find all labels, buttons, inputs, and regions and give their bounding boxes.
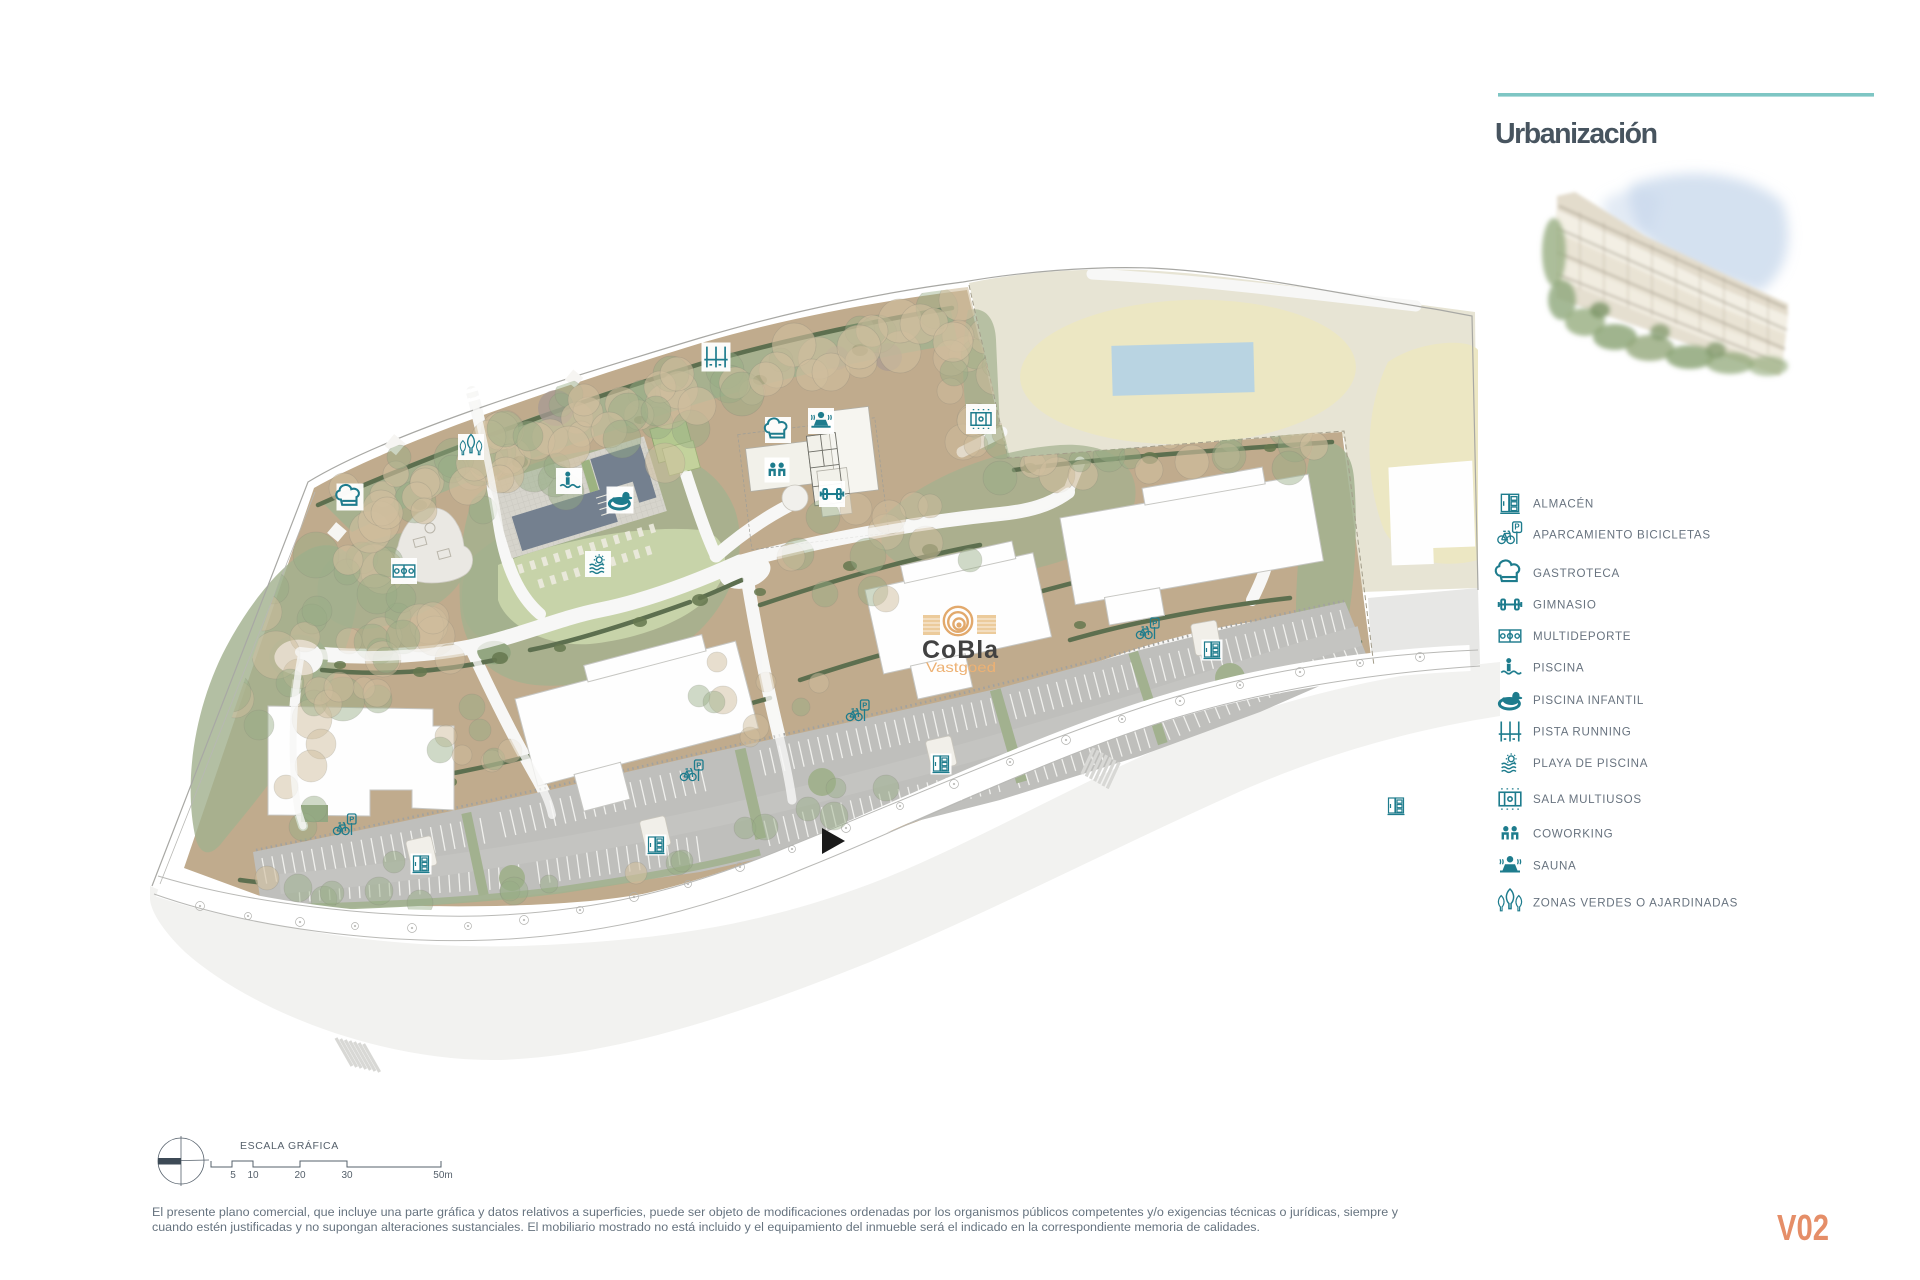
svg-text:30: 30 bbox=[341, 1170, 353, 1181]
svg-text:Urbanización: Urbanización bbox=[1495, 118, 1658, 150]
svg-text:50m: 50m bbox=[433, 1170, 452, 1181]
svg-text:GASTROTECA: GASTROTECA bbox=[1533, 567, 1620, 580]
svg-text:P: P bbox=[349, 814, 354, 823]
svg-text:V02: V02 bbox=[1777, 1207, 1829, 1248]
svg-text:P: P bbox=[1514, 523, 1519, 532]
svg-text:20: 20 bbox=[294, 1170, 306, 1181]
svg-text:ESCALA GRÁFICA: ESCALA GRÁFICA bbox=[240, 1139, 339, 1152]
svg-text:ALMACÉN: ALMACÉN bbox=[1533, 498, 1594, 511]
svg-text:cuando estén justificadas y no: cuando estén justificadas y no supongan … bbox=[152, 1220, 1260, 1234]
svg-text:SALA MULTIUSOS: SALA MULTIUSOS bbox=[1533, 793, 1642, 806]
svg-text:10: 10 bbox=[247, 1170, 259, 1181]
svg-text:P: P bbox=[1152, 618, 1157, 627]
svg-text:PISTA RUNNING: PISTA RUNNING bbox=[1533, 726, 1631, 739]
svg-text:PISCINA: PISCINA bbox=[1533, 662, 1584, 675]
svg-text:APARCAMIENTO BICICLETAS: APARCAMIENTO BICICLETAS bbox=[1533, 529, 1711, 542]
svg-text:PLAYA DE PISCINA: PLAYA DE PISCINA bbox=[1533, 757, 1648, 770]
svg-text:El presente plano comercial, q: El presente plano comercial, que incluye… bbox=[152, 1205, 1399, 1219]
svg-text:MULTIDEPORTE: MULTIDEPORTE bbox=[1533, 630, 1631, 643]
svg-text:P: P bbox=[862, 700, 867, 709]
svg-text:5: 5 bbox=[230, 1170, 236, 1181]
svg-text:SAUNA: SAUNA bbox=[1533, 860, 1576, 873]
svg-text:COWORKING: COWORKING bbox=[1533, 828, 1613, 841]
svg-text:P: P bbox=[696, 760, 701, 769]
svg-text:PISCINA INFANTIL: PISCINA INFANTIL bbox=[1533, 694, 1644, 707]
svg-text:GIMNASIO: GIMNASIO bbox=[1533, 599, 1597, 612]
svg-text:ZONAS VERDES O AJARDINADAS: ZONAS VERDES O AJARDINADAS bbox=[1533, 897, 1738, 910]
svg-text:Vastgoed: Vastgoed bbox=[926, 659, 996, 675]
